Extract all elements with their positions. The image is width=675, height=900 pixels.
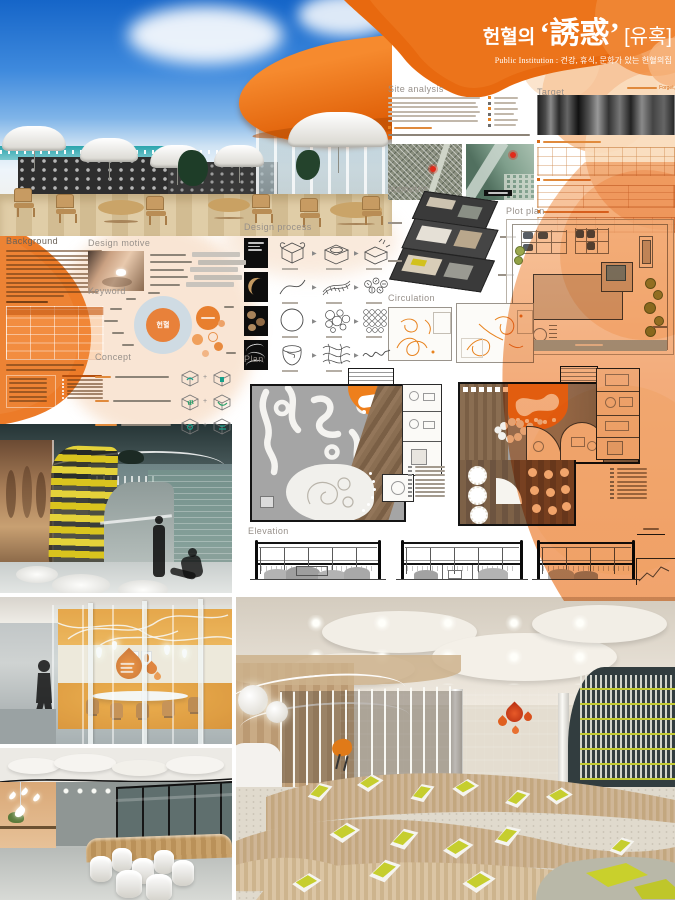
keyword-center-bubble: 헌혈	[146, 308, 180, 342]
terrace-chair	[252, 194, 272, 224]
tree	[645, 278, 656, 289]
bookshelf-row	[580, 720, 675, 735]
sitting-silhouette	[170, 548, 218, 588]
glass-mullion	[88, 603, 93, 744]
concept-cube	[179, 368, 201, 388]
title-hanja: ‘誘惑’	[540, 17, 620, 50]
presentation-board: 헌혈의 ‘誘惑’ [유혹] Public Institution : 건강, 휴…	[0, 0, 675, 900]
concept-cube	[179, 392, 201, 412]
tree	[515, 246, 525, 256]
design-motive-section: Design motive	[88, 238, 240, 248]
keyword-bubble	[192, 334, 203, 345]
circulation-plan-1	[388, 307, 452, 361]
scale-bar	[637, 528, 665, 535]
rooms-2f	[596, 368, 640, 460]
target-photo-strip	[537, 95, 675, 135]
road-strip	[511, 340, 667, 351]
process-row-1: ▶ ▶	[244, 238, 390, 270]
mural-panel	[0, 440, 54, 564]
design-process-section: Design process ▶ ▶ ▶ ▶	[244, 222, 390, 368]
title-block: 헌혈의 ‘誘惑’ [유혹] Public Institution : 건강, 휴…	[390, 8, 672, 66]
poster-title: 헌혈의 ‘誘惑’ [유혹]	[390, 8, 672, 52]
plan-section: Plan	[240, 354, 675, 530]
process-photo-pasta	[244, 272, 268, 302]
background-lists	[6, 375, 104, 408]
section-drawing-2	[402, 540, 522, 588]
sphere-lamp	[266, 701, 288, 723]
donation-room-render	[0, 597, 232, 744]
concept-cube	[211, 416, 233, 436]
terrace-2f	[458, 460, 576, 526]
umbrella	[214, 145, 264, 181]
umbrella	[80, 138, 138, 178]
drop-artwork	[498, 699, 534, 739]
site-analysis-bullets	[488, 96, 518, 129]
terrace-chair	[146, 196, 166, 226]
keyword-bubble-large	[196, 306, 220, 330]
gallery-render	[0, 424, 232, 593]
target-table-2	[537, 185, 675, 208]
site-analysis-section: Site analysis	[388, 84, 534, 94]
terrace-chair	[14, 188, 34, 218]
rooms-1f	[402, 384, 442, 476]
section-drawing-1	[256, 540, 380, 588]
target-table-1	[537, 147, 675, 176]
sketch-circle	[276, 306, 308, 334]
poster-subtitle: Public Institution : 건강, 휴식, 문화가 있는 헌혈의집	[390, 55, 672, 66]
glass-mullion	[142, 601, 147, 744]
design-motive-heading: Design motive	[88, 238, 240, 248]
floor-plan-1f	[250, 368, 450, 530]
site-analysis-heading: Site analysis	[388, 84, 534, 94]
target-table-1-header	[537, 140, 601, 146]
white-stool	[16, 566, 58, 583]
dim-note	[653, 326, 667, 328]
terrace-chair	[56, 194, 76, 224]
motive-list	[150, 252, 246, 290]
keyword-bubble	[208, 332, 218, 342]
site-label	[388, 126, 432, 129]
tree	[514, 256, 523, 265]
table-caption	[6, 301, 48, 303]
terrace-table	[98, 200, 144, 215]
concept-section: Concept + + +	[95, 352, 240, 442]
site-analysis-text	[388, 97, 480, 124]
background-list-left	[6, 375, 56, 408]
bookshelf-row	[580, 705, 675, 720]
keyword-center-label: 헌혈	[157, 320, 170, 330]
plant-silhouette	[118, 450, 144, 464]
white-stool	[116, 870, 142, 898]
plot-plan-heading: Plot plan	[506, 206, 674, 216]
sketch-hatched-wave	[320, 272, 352, 300]
isometric-diagram	[388, 196, 520, 292]
keyword-bubble	[214, 342, 223, 351]
warm-room-left	[0, 782, 56, 852]
sketch-flower-cluster	[361, 272, 391, 300]
umbrella	[2, 126, 66, 168]
isometric-section: Isometric	[388, 184, 520, 294]
map-marker	[510, 152, 516, 158]
section-3-annex	[636, 558, 675, 585]
process-photo-book	[244, 238, 268, 268]
lounge-render	[236, 597, 675, 900]
site-caption-line	[388, 134, 534, 139]
sketch-box-exploded	[361, 238, 391, 266]
title-prefix: 헌혈의	[483, 27, 535, 48]
lounge-blob-1f	[286, 464, 374, 522]
elevation-section: Elevation	[244, 526, 675, 592]
glass-roof	[606, 265, 626, 281]
target-table-2-header	[537, 178, 591, 184]
flower-table	[468, 486, 487, 505]
process-photo-chestnuts	[244, 306, 268, 336]
flower-table	[470, 506, 488, 524]
tree	[653, 290, 663, 300]
sketch-bubble-cluster	[320, 306, 352, 334]
plan-1f-legend	[408, 466, 445, 500]
bookshelf-row	[580, 675, 675, 690]
sketch-box-tray	[320, 238, 352, 266]
design-process-heading: Design process	[244, 222, 390, 232]
keyword-diagram: 헌혈	[104, 294, 236, 358]
keyword-bubble	[218, 320, 225, 327]
sketch-curve	[276, 272, 308, 300]
concept-cube	[211, 392, 233, 412]
spot-lights	[62, 788, 122, 794]
concept-heading: Concept	[95, 352, 240, 362]
iso-label	[388, 222, 402, 224]
process-row-3: ▶ ▶	[244, 306, 390, 338]
outside-floor	[0, 709, 56, 744]
process-row-2: ▶ ▶	[244, 272, 390, 304]
plant	[178, 150, 208, 186]
white-stool	[154, 850, 174, 874]
fan-bench	[496, 478, 522, 504]
elevation-heading: Elevation	[248, 526, 675, 536]
glass-mullion	[198, 599, 203, 744]
floor-plan-2f	[456, 366, 656, 528]
terraced-seating	[236, 745, 675, 900]
standing-silhouette	[150, 516, 168, 578]
white-stool	[118, 580, 168, 593]
flower-table	[468, 466, 487, 485]
tree	[644, 302, 656, 314]
concept-cube	[211, 368, 233, 388]
plan-2f-legend	[610, 468, 647, 502]
plan-heading: Plan	[244, 354, 675, 364]
white-stool	[52, 574, 110, 593]
concept-cube	[179, 416, 201, 436]
map-marker	[430, 166, 436, 172]
furniture-mark	[260, 496, 274, 508]
keyword-section: Keyword 헌혈	[88, 286, 240, 358]
title-bracket: [유혹]	[624, 26, 672, 48]
stool-lounge-render	[0, 748, 232, 900]
white-stool	[112, 848, 132, 872]
white-stool	[90, 856, 112, 882]
isometric-heading: Isometric	[388, 184, 520, 194]
terrace-table	[208, 198, 250, 212]
target-section: Target Forget,	[537, 82, 675, 100]
round-table	[528, 468, 537, 477]
sketch-open-box	[276, 238, 308, 266]
sketch-ring-grid	[361, 306, 391, 334]
circulation-heading: Circulation	[388, 293, 534, 303]
parking-stalls	[521, 230, 567, 254]
tree	[654, 316, 664, 326]
section-drawing-3	[538, 540, 634, 588]
bookshelf-row	[580, 690, 675, 705]
van-stall	[639, 236, 653, 268]
parking-stalls	[575, 228, 609, 254]
motive-photo-arm	[88, 251, 144, 291]
target-caption: Forget,	[659, 85, 675, 91]
white-stool	[146, 874, 172, 900]
white-stool	[172, 860, 194, 886]
sphere-lamp	[238, 685, 268, 715]
